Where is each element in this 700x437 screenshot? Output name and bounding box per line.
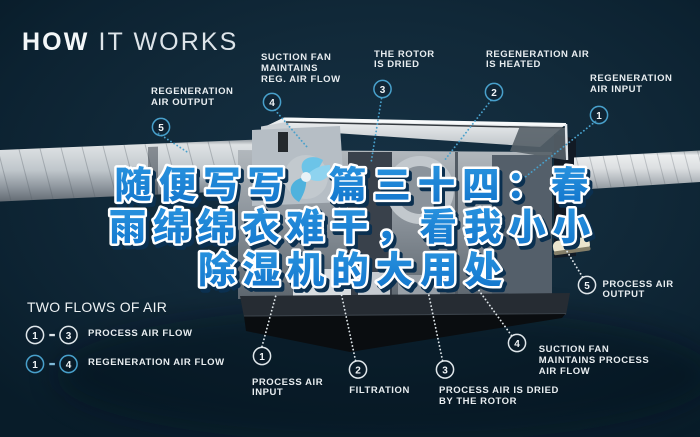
- svg-text:2: 2: [491, 88, 497, 99]
- svg-text:1: 1: [32, 331, 38, 342]
- svg-text:1: 1: [32, 360, 38, 371]
- svg-text:1: 1: [259, 352, 265, 363]
- svg-text:4: 4: [66, 360, 72, 371]
- svg-text:3: 3: [442, 365, 448, 376]
- svg-text:3: 3: [380, 85, 386, 96]
- svg-text:3: 3: [66, 331, 72, 342]
- svg-text:4: 4: [514, 339, 520, 350]
- svg-text:4: 4: [269, 98, 275, 109]
- svg-text:5: 5: [584, 281, 590, 292]
- svg-text:2: 2: [355, 365, 361, 376]
- svg-text:1: 1: [596, 111, 602, 122]
- svg-text:5: 5: [158, 123, 164, 134]
